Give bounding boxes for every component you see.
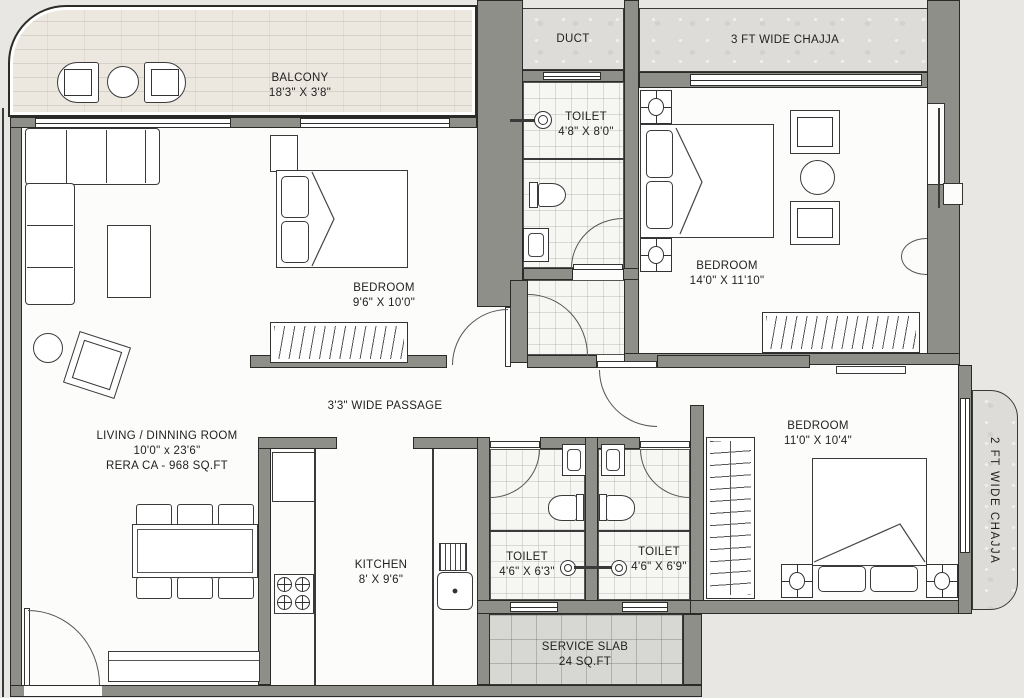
wall-kitchen-left	[258, 437, 271, 685]
nightstand-ac-symbol	[640, 238, 672, 272]
bedroom-top-right-label: BEDROOM 14'0" X 11'10"	[690, 259, 765, 289]
floor-plan: BALCONY 18'3" X 3'8" DUCT 3 FT WIDE CHAJ…	[0, 0, 1024, 698]
shower-arm	[510, 119, 536, 122]
toilet-zone-line	[490, 530, 585, 532]
niche-window-line	[938, 108, 940, 208]
room-rera: RERA CA - 968 SQ.FT	[96, 459, 237, 474]
bedroom-right-label: BEDROOM 11'0" X 10'4"	[784, 419, 852, 449]
toilet-left-door-leaf	[490, 441, 540, 448]
blanket-fold	[276, 170, 408, 268]
room-name: TOILET	[631, 545, 687, 560]
wardrobe	[762, 312, 920, 353]
room-name: BEDROOM	[784, 419, 852, 434]
wall-passage-mid	[527, 355, 597, 368]
nightstand-ac-symbol	[781, 564, 813, 598]
nightstand-ac-symbol	[926, 564, 958, 598]
room-name: 3'3" WIDE PASSAGE	[328, 399, 443, 414]
room-dims: 11'0" X 10'4"	[784, 434, 852, 449]
bedroom-right-door-leaf	[597, 361, 657, 368]
passage-label: 3'3" WIDE PASSAGE	[328, 399, 443, 414]
room-name: BEDROOM	[690, 259, 765, 274]
wall-bedroom-right-left	[690, 405, 704, 614]
room-dims: 24 SQ.FT	[542, 655, 628, 670]
balcony-label: BALCONY 18'3" X 3'8"	[269, 71, 331, 101]
room-dims: 18'3" X 3'8"	[269, 86, 331, 101]
toilet-right-label: TOILET 4'6" X 6'9"	[631, 545, 687, 575]
bedroom-top-right-window	[690, 74, 922, 86]
bedroom-chair	[790, 201, 840, 245]
room-dims: 4'6" X 6'9"	[631, 560, 687, 575]
room-name: KITCHEN	[355, 558, 408, 573]
wall-bedroom-right-bottom	[690, 600, 972, 614]
room-name: 3 FT WIDE CHAJJA	[731, 33, 839, 48]
sofa-top-section	[25, 128, 160, 185]
wardrobe	[706, 437, 755, 599]
dining-chair	[177, 504, 213, 526]
kitchen-label: KITCHEN 8' X 9'6"	[355, 558, 408, 588]
drainboard	[439, 543, 467, 571]
wall-service-right	[683, 614, 702, 685]
toilet-zone-line	[523, 158, 624, 160]
wall-kitchen-top-a	[258, 437, 337, 449]
sofa-armrest-line	[145, 130, 146, 183]
wall-niche	[927, 103, 945, 185]
room-dims: 4'8" X 8'0"	[558, 125, 614, 140]
entry-opening	[24, 686, 102, 696]
pillow	[818, 566, 866, 592]
chajja-top-label: 3 FT WIDE CHAJJA	[731, 33, 839, 48]
room-dims: 10'0" x 23'6"	[96, 444, 237, 459]
nightstand	[270, 135, 298, 172]
round-table	[800, 160, 835, 195]
wall-toilet-divider	[585, 437, 598, 607]
tv-cabinet	[108, 651, 260, 682]
wall-niche-sill	[943, 183, 963, 205]
dining-chair	[136, 504, 172, 526]
wc-bowl	[538, 183, 566, 207]
room-dims: 9'6" X 10'0"	[353, 296, 415, 311]
dining-chair	[218, 504, 254, 526]
wall-right-of-duct	[624, 0, 639, 365]
sofa-left-section	[25, 183, 75, 305]
wall-stub-mid	[510, 280, 528, 363]
wc-bowl	[548, 495, 577, 521]
toilet-left-vent	[510, 602, 558, 612]
toilet-zone-line	[598, 530, 690, 532]
dresser	[836, 366, 906, 374]
toilet-left-label: TOILET 4'6" X 6'3"	[499, 550, 555, 580]
sofa-seam	[27, 267, 73, 268]
wall-left	[10, 117, 22, 697]
washbasin	[601, 444, 625, 476]
room-dims: 14'0" X 11'10"	[690, 274, 765, 289]
wc-tank	[529, 182, 538, 208]
living-label: LIVING / DINNING ROOM 10'0" x 23'6" RERA…	[96, 429, 237, 475]
sofa-seam	[66, 130, 67, 183]
wall-bottom	[10, 685, 702, 697]
stove	[274, 574, 314, 614]
kitchen-sink	[437, 572, 473, 610]
chajja-right-label: 2 FT WIDE CHAJJA	[988, 396, 1000, 606]
burner-icon	[277, 577, 292, 592]
dining-chair	[177, 577, 213, 599]
wc-tank	[576, 494, 584, 521]
bedroom-chair	[790, 110, 840, 154]
balcony-table	[107, 66, 139, 98]
room-name: TOILET	[499, 550, 555, 565]
wall-passage-right	[657, 355, 810, 368]
bedroom-mid-window	[300, 118, 450, 128]
living-window	[35, 118, 231, 128]
sofa-seam	[106, 130, 107, 183]
dining-table	[132, 524, 258, 578]
pillow	[870, 566, 918, 592]
wardrobe	[270, 322, 408, 363]
wall-left-outer-line	[2, 108, 4, 697]
toilet-right-vent	[622, 602, 668, 612]
burner-icon	[295, 577, 310, 592]
bedroom-right-window	[960, 398, 970, 553]
burner-icon	[277, 595, 292, 610]
room-name: TOILET	[558, 110, 614, 125]
balcony-chair	[144, 62, 186, 103]
dining-chair	[218, 577, 254, 599]
shower-arm	[574, 566, 598, 569]
burner-icon	[295, 595, 310, 610]
stool	[33, 333, 63, 363]
duct-label: DUCT	[556, 32, 589, 47]
room-dims: 4'6" X 6'3"	[499, 565, 555, 580]
wall-toilet-top-bottom-a	[523, 268, 573, 280]
room-name: BEDROOM	[353, 281, 415, 296]
room-name: SERVICE SLAB	[542, 640, 628, 655]
bedroom-mid-label: BEDROOM 9'6" X 10'0"	[353, 281, 415, 311]
toilet-top-label: TOILET 4'8" X 8'0"	[558, 110, 614, 140]
room-name: DUCT	[556, 32, 589, 47]
wall-toilet-top-bottom-b	[623, 268, 639, 280]
balcony-chair	[57, 62, 99, 103]
washbasin	[562, 444, 586, 476]
duct-vent	[543, 72, 601, 80]
wall-shaft	[477, 0, 523, 307]
kitchen-counter-right-edge	[432, 449, 434, 685]
shower-head-icon	[611, 560, 627, 576]
nightstand-ac-symbol	[640, 90, 672, 124]
washbasin	[523, 228, 549, 262]
blanket-fold	[640, 124, 774, 238]
coffee-table	[107, 225, 151, 298]
service-slab-label: SERVICE SLAB 24 SQ.FT	[542, 640, 628, 670]
toilet-right-door-leaf	[640, 441, 690, 448]
dining-chair	[136, 577, 172, 599]
room-name: LIVING / DINNING ROOM	[96, 429, 237, 444]
wc-bowl	[606, 495, 635, 521]
room-dims: 8' X 9'6"	[355, 573, 408, 588]
wall-kitchen-right	[477, 437, 490, 685]
blanket-fold	[812, 458, 927, 566]
fridge	[272, 452, 315, 502]
shower-head-icon	[534, 111, 552, 129]
room-name: BALCONY	[269, 71, 331, 86]
sofa-seam	[27, 225, 73, 226]
